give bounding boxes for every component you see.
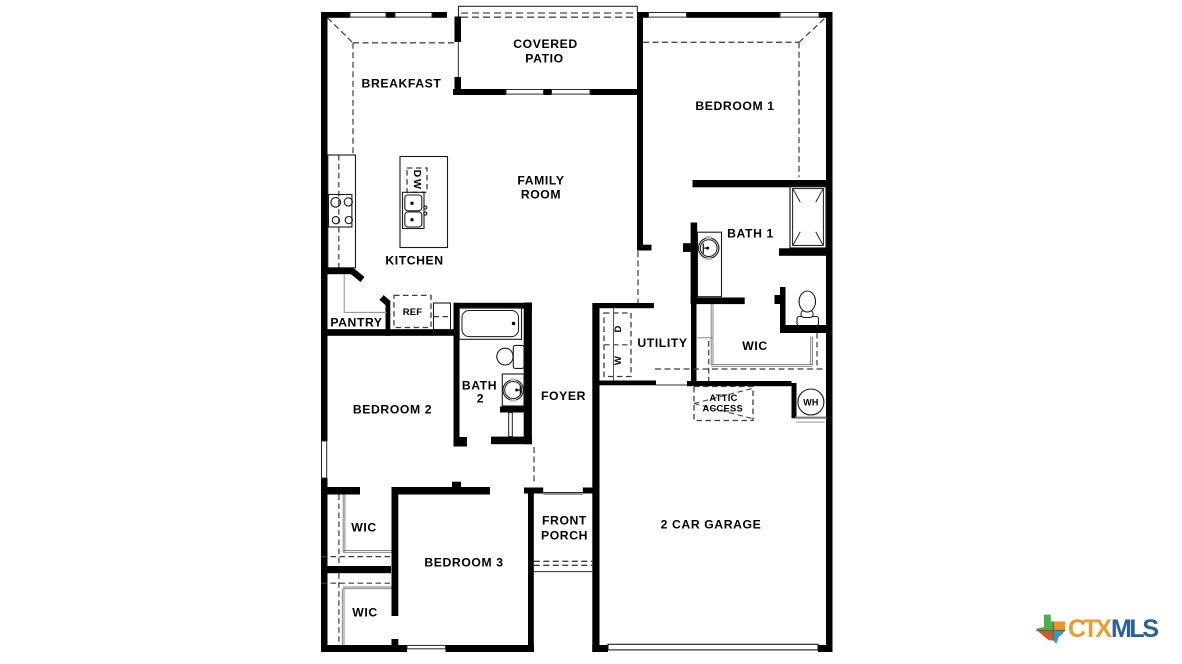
svg-text:ATTIC: ATTIC [709, 393, 737, 403]
svg-text:ACCESS: ACCESS [703, 404, 744, 414]
svg-text:PORCH: PORCH [541, 529, 588, 543]
svg-text:W: W [613, 356, 624, 365]
svg-text:BEDROOM 1: BEDROOM 1 [695, 99, 774, 113]
svg-text:FRONT: FRONT [542, 514, 587, 528]
svg-text:2: 2 [477, 392, 484, 406]
svg-text:COVERED: COVERED [513, 37, 577, 51]
svg-text:D: D [613, 325, 624, 332]
svg-text:CTX: CTX [1068, 615, 1112, 643]
svg-text:DW: DW [411, 170, 423, 191]
svg-text:PANTRY: PANTRY [330, 316, 382, 330]
svg-text:BATH 1: BATH 1 [727, 227, 774, 241]
svg-text:WH: WH [803, 397, 818, 407]
svg-text:UTILITY: UTILITY [637, 336, 687, 350]
svg-text:MLS: MLS [1111, 615, 1158, 643]
svg-text:BEDROOM 3: BEDROOM 3 [424, 556, 503, 570]
svg-text:ROOM: ROOM [521, 188, 561, 202]
svg-text:BATH: BATH [462, 379, 497, 393]
svg-text:BREAKFAST: BREAKFAST [362, 77, 442, 91]
svg-text:WIC: WIC [351, 521, 377, 535]
svg-text:FAMILY: FAMILY [517, 174, 564, 188]
svg-text:BEDROOM 2: BEDROOM 2 [353, 403, 432, 417]
svg-text:WIC: WIC [742, 339, 768, 353]
svg-text:FOYER: FOYER [541, 389, 586, 403]
svg-text:REF: REF [403, 307, 423, 318]
svg-text:WIC: WIC [352, 606, 378, 620]
svg-text:KITCHEN: KITCHEN [385, 254, 443, 268]
svg-text:PATIO: PATIO [525, 51, 563, 65]
svg-text:2 CAR GARAGE: 2 CAR GARAGE [661, 518, 762, 532]
